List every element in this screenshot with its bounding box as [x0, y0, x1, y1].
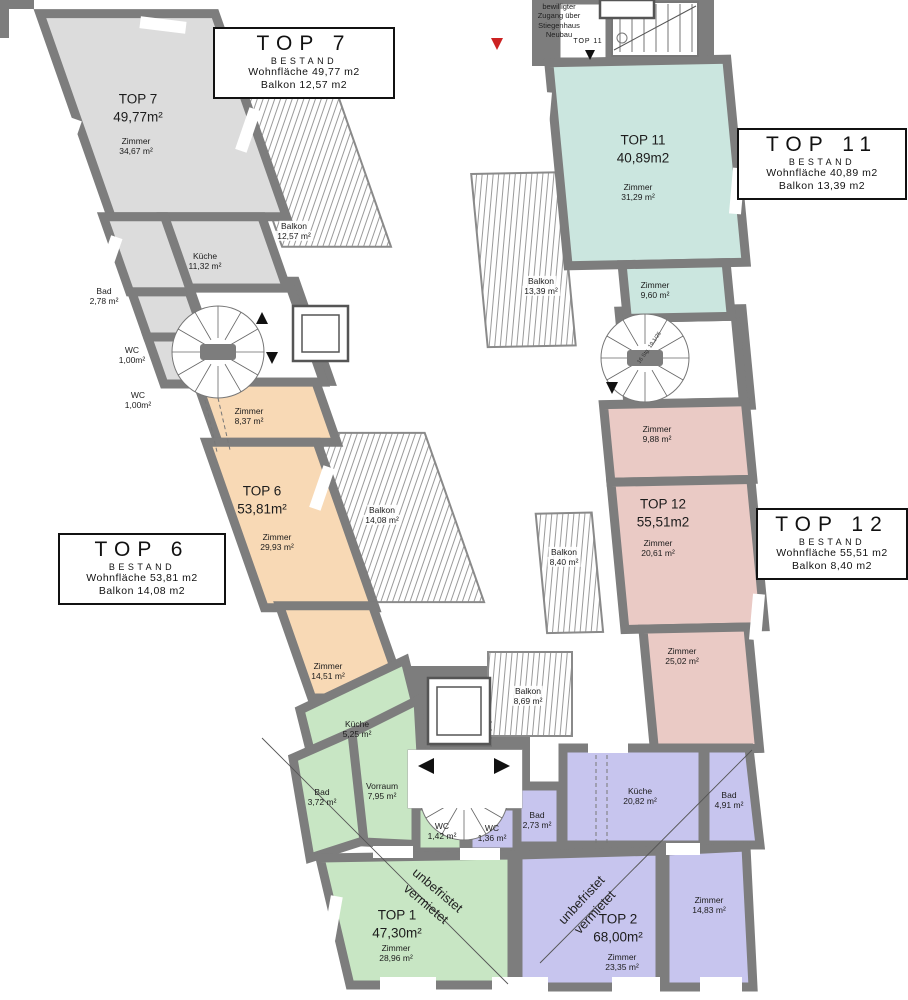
top11-entry-label: TOP 11	[566, 38, 610, 45]
window-gap	[588, 741, 628, 753]
room-label-top7_unit: TOP 749,77m²	[113, 90, 163, 125]
info-box-top7: TOP 7 BESTAND Wohnfläche 49,77 m2 Balkon…	[213, 27, 395, 99]
entry-marker-icon	[491, 38, 503, 50]
wall-fragment	[698, 0, 710, 58]
room-label-z2061: Zimmer20,61 m²	[641, 538, 675, 558]
elevator-bottom	[428, 678, 490, 744]
room-label-top11_unit: TOP 1140,89m2	[617, 131, 670, 166]
room-label-top1_unit: TOP 147,30m²	[372, 906, 422, 941]
room-label-z988: Zimmer9,88 m²	[643, 424, 672, 444]
window-gap	[536, 92, 552, 139]
room-label-top12_unit: TOP 1255,51m2	[637, 495, 690, 530]
room-label-z2993: Zimmer29,93 m²	[260, 532, 294, 552]
info-box-top11: TOP 11 BESTAND Wohnfläche 40,89 m2 Balko…	[737, 128, 907, 200]
info-box-top7-area: Wohnfläche 49,77 m2	[219, 66, 389, 79]
info-box-top11-title: TOP 11	[743, 133, 901, 157]
room-label-z2335: Zimmer23,35 m²	[605, 952, 639, 972]
info-box-top11-tag: BESTAND	[743, 157, 901, 167]
room-label-balk1408: Balkon14,08 m²	[363, 505, 401, 525]
access-note-line: Zugang über	[517, 11, 601, 20]
room-top2-zimmer-1483	[665, 847, 753, 987]
info-box-top12: TOP 12 BESTAND Wohnfläche 55,51 m2 Balko…	[756, 508, 908, 580]
info-box-top12-title: TOP 12	[762, 513, 902, 537]
info-box-top7-balcony: Balkon 12,57 m2	[219, 79, 389, 92]
room-label-k1132: Küche11,32 m²	[189, 251, 222, 271]
room-label-bad372: Bad3,72 m²	[308, 787, 337, 807]
access-note: bewilligter Zugang über Stiegenhaus Neub…	[517, 2, 601, 40]
room-label-z3129: Zimmer31,29 m²	[621, 182, 655, 202]
elevator-left	[293, 306, 348, 361]
info-box-top6-tag: BESTAND	[64, 562, 220, 572]
room-label-wc142: WC1,42 m²	[428, 821, 457, 841]
info-box-top6-title: TOP 6	[64, 538, 220, 562]
window-gap	[492, 977, 548, 992]
info-box-top12-balcony: Balkon 8,40 m2	[762, 560, 902, 573]
window-gap	[666, 843, 700, 855]
info-box-top6: TOP 6 BESTAND Wohnfläche 53,81 m2 Balkon…	[58, 533, 226, 605]
room-label-vor795: Vorraum7,95 m²	[366, 781, 398, 801]
info-box-top6-area: Wohnfläche 53,81 m2	[64, 572, 220, 585]
room-label-bad491: Bad4,91 m²	[715, 790, 744, 810]
window-gap	[460, 848, 500, 860]
window-gap	[612, 977, 660, 992]
room-label-z2896: Zimmer28,96 m²	[379, 943, 413, 963]
info-box-top11-balcony: Balkon 13,39 m2	[743, 180, 901, 193]
room-label-wc100a: WC1,00m²	[119, 345, 145, 365]
room-label-bad273: Bad2,73 m²	[523, 810, 552, 830]
room-label-z837: Zimmer8,37 m²	[235, 406, 264, 426]
room-label-balk1339: Balkon13,39 m²	[522, 276, 560, 296]
room-label-z960: Zimmer9,60 m²	[641, 280, 670, 300]
balcony-top12	[536, 513, 603, 634]
room-label-ku2082: Küche20,82 m²	[623, 786, 657, 806]
room-top12-zimmer-2502	[643, 627, 760, 751]
room-top12-zimmer-988	[603, 402, 753, 483]
room-label-balk840: Balkon8,40 m²	[548, 547, 581, 567]
info-box-top12-tag: BESTAND	[762, 537, 902, 547]
window-gap	[54, 117, 82, 168]
access-note-line: bewilligter	[517, 2, 601, 11]
room-top11-zimmer-960	[622, 263, 731, 319]
window-gap	[373, 846, 413, 858]
info-box-top7-title: TOP 7	[219, 32, 389, 56]
window-gap	[380, 977, 436, 992]
room-label-bad278: Bad2,78 m²	[90, 286, 119, 306]
stair-landing-floor	[408, 750, 522, 808]
room-label-z3467: Zimmer34,67 m²	[119, 136, 153, 156]
elevator-top	[600, 0, 654, 18]
access-note-line: Stiegenhaus	[517, 21, 601, 30]
window-gap	[700, 977, 742, 992]
floor-plan: TOP 7 BESTAND Wohnfläche 49,77 m2 Balkon…	[0, 0, 908, 1000]
info-box-top6-balcony: Balkon 14,08 m2	[64, 585, 220, 598]
room-label-balk1257: Balkon12,57 m²	[275, 221, 313, 241]
info-box-top12-area: Wohnfläche 55,51 m2	[762, 547, 902, 560]
wall-fragment	[0, 0, 9, 38]
room-label-balk869: Balkon8,69 m²	[512, 686, 545, 706]
room-label-wc100b: WC1,00m²	[125, 390, 151, 410]
room-label-z1451: Zimmer14,51 m²	[311, 661, 345, 681]
room-label-k525: Küche5,25 m²	[343, 719, 372, 739]
info-box-top11-area: Wohnfläche 40,89 m2	[743, 167, 901, 180]
spiral-stair-left	[172, 306, 264, 398]
room-label-z2502: Zimmer25,02 m²	[665, 646, 699, 666]
room-label-wc136: WC1,36 m²	[478, 823, 507, 843]
room-label-z1483: Zimmer14,83 m²	[692, 895, 726, 915]
room-label-top6_unit: TOP 653,81m²	[237, 482, 287, 517]
info-box-top7-tag: BESTAND	[219, 56, 389, 66]
